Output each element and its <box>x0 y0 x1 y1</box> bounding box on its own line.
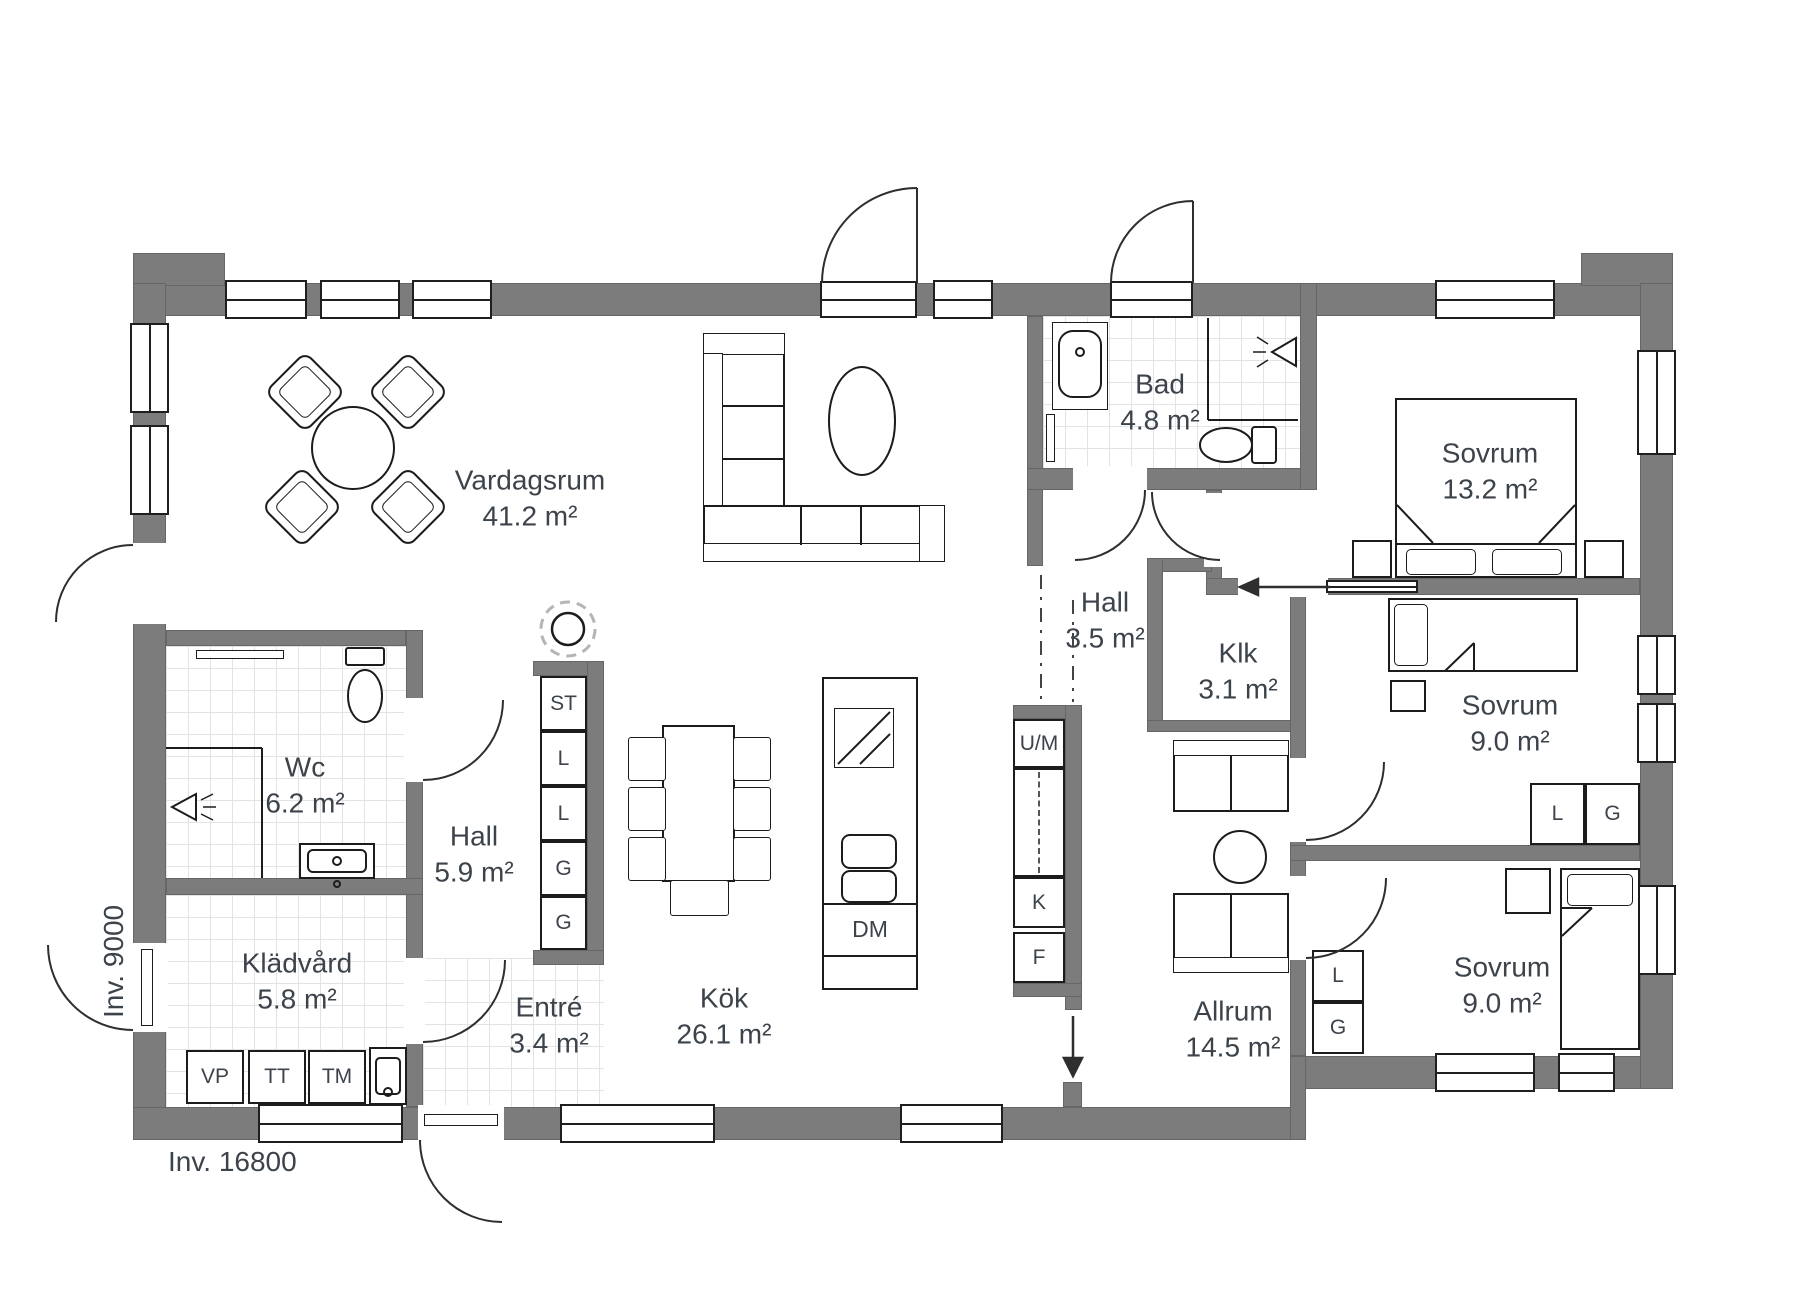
room-area: 3.4 m² <box>509 1026 588 1062</box>
room-name: Wc <box>265 750 344 786</box>
room-label: Sovrum 9.0 m² <box>1454 950 1550 1023</box>
wall-segment <box>1027 316 1043 566</box>
round-table <box>312 407 394 489</box>
room-name: Sovrum <box>1462 688 1558 724</box>
door-arc <box>1306 878 1386 958</box>
room-name: Klk <box>1198 636 1277 672</box>
dining-chair <box>628 837 666 881</box>
sofa-back <box>1173 740 1289 756</box>
pillow <box>1492 549 1562 575</box>
room-area: 3.5 m² <box>1065 621 1144 657</box>
allrum-details <box>1214 831 1266 883</box>
terrace-door <box>1110 281 1193 318</box>
dryer-box: TT <box>248 1050 306 1104</box>
closet-text: L <box>1552 802 1564 826</box>
window <box>1558 1053 1615 1092</box>
dining-chair <box>733 787 771 831</box>
window <box>1637 635 1676 695</box>
window <box>900 1104 1003 1143</box>
room-label: Bad 4.8 m² <box>1120 367 1199 440</box>
door-opening <box>404 698 425 782</box>
pillow <box>1567 874 1633 906</box>
wall-segment <box>1147 720 1306 732</box>
room-label: Klk 3.1 m² <box>1198 636 1277 709</box>
sofa-armrest <box>703 333 785 355</box>
armchair <box>261 466 343 548</box>
towel-rail-icon <box>196 650 284 659</box>
sliding-door-rail <box>1326 580 1418 593</box>
dining-chair <box>733 837 771 881</box>
sofa-cushion-line <box>800 505 802 545</box>
room-area: 9.0 m² <box>1462 724 1558 760</box>
room-name: Hall <box>1065 585 1144 621</box>
freezer-text: F <box>1033 946 1046 970</box>
window-glass <box>227 299 305 301</box>
water-heater-text: VP <box>201 1065 229 1089</box>
door-arc <box>1075 490 1145 560</box>
room-name: Kök <box>677 981 772 1017</box>
door-arc <box>56 545 133 622</box>
window-glass <box>149 325 151 411</box>
bathtub-icon <box>1052 322 1108 410</box>
window-glass <box>562 1123 713 1125</box>
oven-micro-text: U/M <box>1020 732 1059 756</box>
window <box>412 280 492 319</box>
window-glass <box>1656 352 1658 453</box>
window <box>320 280 400 319</box>
window-glass <box>322 299 398 301</box>
window <box>560 1104 715 1143</box>
closet-text: L <box>558 747 570 771</box>
terrace-door <box>820 281 917 318</box>
door-opening <box>1288 876 1308 960</box>
nightstand <box>1352 540 1392 578</box>
wall-segment <box>166 630 406 646</box>
wall-segment <box>1063 1082 1082 1107</box>
sofa-cushion-line <box>723 458 785 460</box>
cooktop-icon <box>834 708 894 768</box>
window-glass <box>935 299 991 301</box>
closet-box: G <box>1585 783 1640 845</box>
door-arc <box>822 188 917 283</box>
sofa-back <box>703 353 723 513</box>
room-area: 13.2 m² <box>1442 472 1538 508</box>
bed-blanket-line <box>1395 543 1577 545</box>
window <box>130 425 169 515</box>
room-name: Allrum <box>1186 994 1281 1030</box>
closet-box: L <box>1530 783 1585 845</box>
wall-segment <box>587 661 604 965</box>
wall-segment <box>1065 705 1082 1010</box>
window-glass <box>822 299 915 301</box>
closet-box: L <box>1312 950 1364 1002</box>
arrow-head-icon <box>1064 1058 1082 1076</box>
door-opening <box>1288 758 1308 842</box>
armchair-seat <box>274 479 331 536</box>
room-area: 3.1 m² <box>1198 672 1277 708</box>
room-name: Bad <box>1120 367 1199 403</box>
armchair-seat <box>380 479 437 536</box>
floor-plan: DM U/M K F ST L L G G VP TT TM L G L G <box>0 0 1800 1300</box>
room-label: Hall 5.9 m² <box>434 819 513 892</box>
water-heater-box: VP <box>186 1050 244 1104</box>
dining-chair <box>628 787 666 831</box>
washer-text: TM <box>322 1065 352 1089</box>
room-label: Sovrum 13.2 m² <box>1442 436 1538 509</box>
door-opening <box>1073 466 1147 492</box>
closet-box: L <box>540 731 587 786</box>
wall-segment <box>133 253 225 286</box>
closet-box: G <box>1312 1002 1364 1054</box>
room-name: Hall <box>434 819 513 855</box>
room-label: Sovrum 9.0 m² <box>1462 688 1558 761</box>
closet-text: G <box>1604 802 1620 826</box>
window <box>1637 885 1676 975</box>
door-opening <box>131 543 168 624</box>
wall-segment <box>1581 253 1673 286</box>
door-arc <box>1111 201 1193 283</box>
closet-box: G <box>540 896 587 950</box>
window-glass <box>902 1123 1001 1125</box>
nightstand <box>1584 540 1624 578</box>
freezer-box: F <box>1013 932 1065 983</box>
window-glass <box>1656 887 1658 973</box>
window-glass <box>1437 299 1553 301</box>
window-glass <box>1112 299 1191 301</box>
armchair-seat <box>380 364 437 421</box>
closet-text: G <box>1330 1016 1346 1040</box>
closet-text: ST <box>550 692 577 716</box>
room-label: Klädvård 5.8 m² <box>242 946 353 1019</box>
room-name: Sovrum <box>1442 436 1538 472</box>
window-glass <box>260 1123 401 1125</box>
door-opening <box>404 958 425 1044</box>
nightstand <box>1390 680 1426 712</box>
window <box>258 1104 403 1143</box>
sofa-cushion-line <box>1230 756 1232 812</box>
radiator-icon <box>1046 414 1055 462</box>
wall-segment <box>1290 1056 1306 1140</box>
room-area: 9.0 m² <box>1454 986 1550 1022</box>
window <box>1435 280 1555 319</box>
wall-segment <box>1027 468 1317 490</box>
window <box>1637 703 1676 763</box>
door-arc <box>420 1140 502 1222</box>
room-area: 4.8 m² <box>1120 403 1199 439</box>
closet-text: L <box>1332 964 1344 988</box>
dishwasher-text: DM <box>852 916 888 943</box>
sofa-armrest <box>919 505 945 562</box>
dining-table <box>662 725 735 882</box>
room-area: 41.2 m² <box>455 499 605 535</box>
sofa-cushion-line <box>860 505 862 545</box>
fridge-box: K <box>1013 877 1065 928</box>
room-name: Sovrum <box>1454 950 1550 986</box>
pillow <box>1406 549 1476 575</box>
width-dimension-label: Inv. 16800 <box>168 1146 297 1178</box>
sofa-cushion-line <box>723 405 785 407</box>
armchair-seat <box>277 364 334 421</box>
closet-box: L <box>540 786 587 841</box>
room-name: Vardagsrum <box>455 463 605 499</box>
window-glass <box>1656 705 1658 761</box>
pillow <box>1394 604 1428 666</box>
coffee-table <box>829 367 895 475</box>
dishwasher-label: DM <box>822 905 918 953</box>
door-arc <box>1306 762 1384 840</box>
sofa-back <box>1173 957 1289 973</box>
room-label: Entré 3.4 m² <box>509 990 588 1063</box>
room-area: 6.2 m² <box>265 786 344 822</box>
dining-chair <box>628 737 666 781</box>
fireplace-icon <box>552 613 584 645</box>
window-glass <box>149 427 151 513</box>
room-area: 14.5 m² <box>1186 1030 1281 1066</box>
armchair <box>367 466 449 548</box>
room-area: 26.1 m² <box>677 1017 772 1053</box>
wall-segment <box>533 950 604 965</box>
door-arc <box>423 700 503 780</box>
wall-segment <box>1147 558 1163 732</box>
oven-micro-box: U/M <box>1013 719 1065 768</box>
room-label: Hall 3.5 m² <box>1065 585 1144 658</box>
depth-dimension-label: Inv. 9000 <box>98 905 130 1018</box>
closet-text: G <box>555 857 571 881</box>
room-label: Vardagsrum 41.2 m² <box>455 463 605 536</box>
room-name: Klädvård <box>242 946 353 982</box>
wall-segment <box>1013 983 1082 997</box>
wall-segment <box>1290 845 1640 861</box>
dining-chair <box>733 737 771 781</box>
window-glass <box>1437 1072 1533 1074</box>
room-area: 5.9 m² <box>434 855 513 891</box>
closet-text: L <box>558 802 570 826</box>
armchair <box>367 351 449 433</box>
window <box>130 323 169 413</box>
door-opening <box>1204 493 1224 567</box>
window <box>1435 1053 1535 1092</box>
closet-text: G <box>555 911 571 935</box>
room-label: Kök 26.1 m² <box>677 981 772 1054</box>
island-line <box>822 955 918 957</box>
sliding-door-opening <box>1238 576 1328 597</box>
window <box>225 280 307 319</box>
closet-box: ST <box>540 676 587 731</box>
stove-hood-icon <box>541 602 595 656</box>
window-glass <box>1560 1072 1613 1074</box>
window-glass <box>414 299 490 301</box>
window <box>933 280 993 319</box>
room-label: Allrum 14.5 m² <box>1186 994 1281 1067</box>
sofa-back <box>703 543 945 562</box>
fridge-text: K <box>1032 891 1046 915</box>
dining-chair <box>670 880 729 916</box>
window-glass <box>1656 637 1658 693</box>
dryer-text: TT <box>264 1065 290 1089</box>
cabinet-dash-line <box>1038 772 1040 873</box>
room-area: 5.8 m² <box>242 982 353 1018</box>
room-name: Entré <box>509 990 588 1026</box>
armchair <box>264 351 346 433</box>
door-leaf <box>141 949 153 1026</box>
room-label: Wc 6.2 m² <box>265 750 344 823</box>
sofa-cushion-line <box>1230 893 1232 957</box>
wall-segment <box>166 878 423 895</box>
wall-segment <box>1300 283 1317 490</box>
door-leaf <box>424 1114 498 1126</box>
closet-box: G <box>540 841 587 896</box>
nightstand <box>1505 868 1551 914</box>
rail-line <box>1328 586 1416 588</box>
window <box>1637 350 1676 455</box>
round-table <box>1214 831 1266 883</box>
washer-box: TM <box>308 1050 366 1104</box>
